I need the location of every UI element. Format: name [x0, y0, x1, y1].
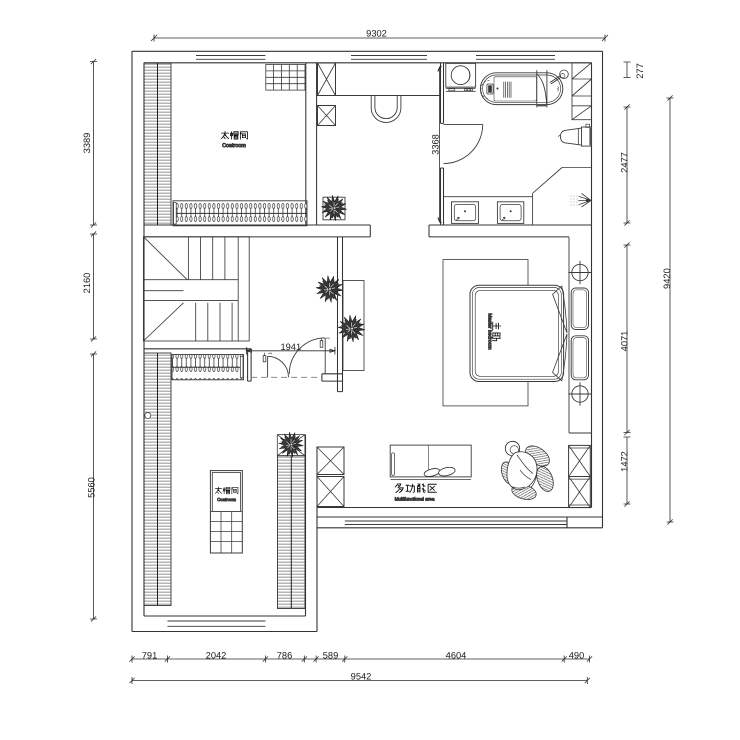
svg-text:4604: 4604 [446, 651, 467, 661]
svg-text:791: 791 [142, 651, 158, 661]
svg-text:9420: 9420 [662, 268, 672, 289]
svg-text:3389: 3389 [82, 133, 92, 154]
svg-text:786: 786 [277, 651, 293, 661]
svg-text:277: 277 [635, 63, 645, 79]
svg-text:Master bedroom: Master bedroom [486, 313, 492, 349]
svg-text:5560: 5560 [86, 477, 96, 498]
svg-text:9542: 9542 [351, 672, 372, 682]
svg-text:490: 490 [569, 651, 585, 661]
svg-text:9302: 9302 [366, 28, 387, 38]
svg-text:4071: 4071 [619, 331, 629, 352]
svg-text:Multifunctional area: Multifunctional area [395, 497, 435, 502]
svg-text:3368: 3368 [430, 134, 440, 155]
svg-text:2042: 2042 [206, 651, 227, 661]
svg-text:Coatroom: Coatroom [217, 497, 236, 502]
svg-text:1472: 1472 [619, 451, 629, 472]
svg-text:Coatroom: Coatroom [222, 143, 246, 149]
svg-text:2160: 2160 [82, 273, 92, 294]
svg-text:589: 589 [323, 651, 339, 661]
svg-text:2477: 2477 [619, 152, 629, 173]
